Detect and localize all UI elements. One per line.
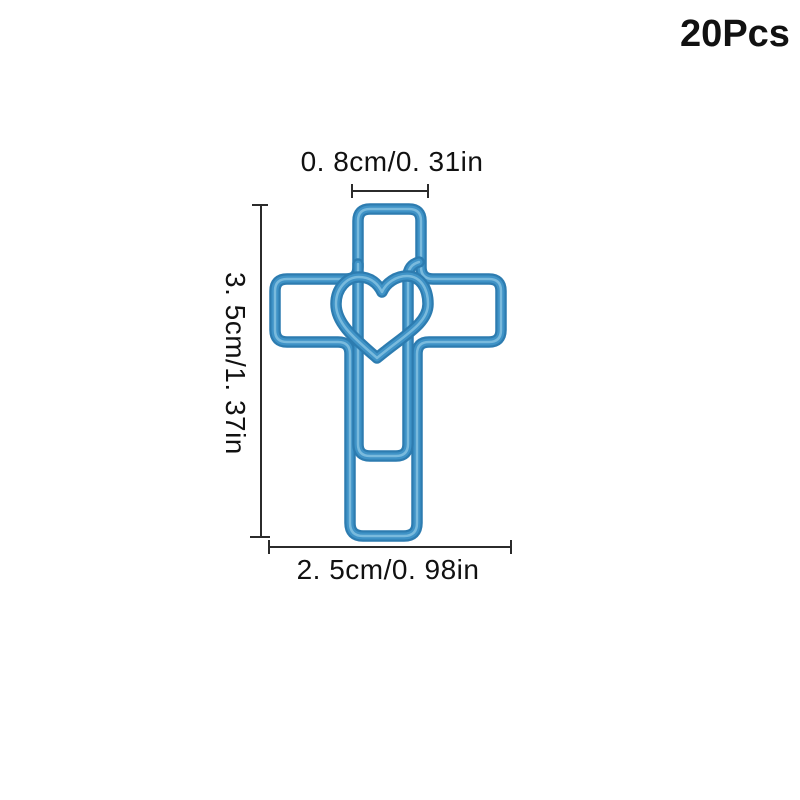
product-image: 20Pcs 0. 8cm/0. 31in 3. 5cm/1. 37in 2. 5…: [0, 0, 800, 800]
outer-cross-wire-mid: [275, 209, 501, 536]
cross-clip-illustration: [0, 0, 800, 800]
outer-cross-wire-base: [275, 209, 501, 536]
outer-cross-wire-sheen: [275, 209, 501, 536]
outer-cross-wire: [275, 209, 501, 536]
